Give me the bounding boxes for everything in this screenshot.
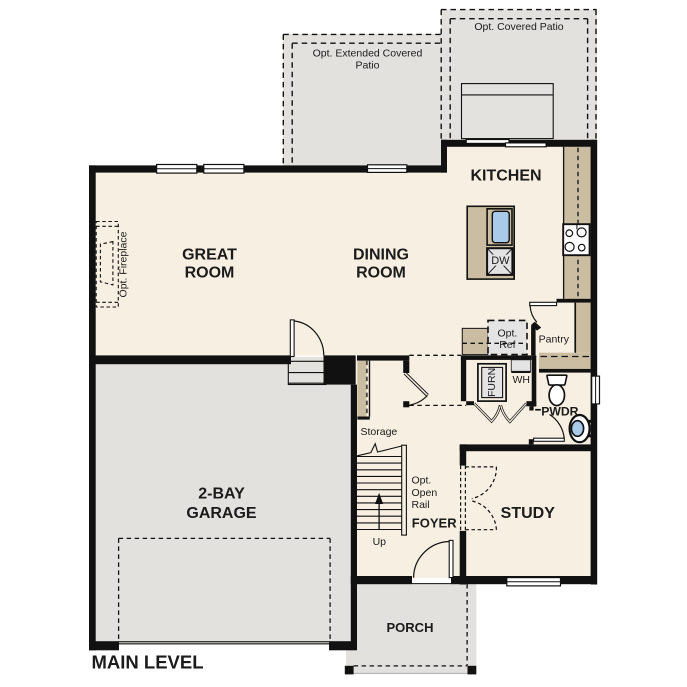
svg-text:Pantry: Pantry [539,334,570,346]
svg-text:Ref: Ref [499,339,515,351]
svg-text:GREAT: GREAT [182,247,237,264]
svg-text:STUDY: STUDY [501,505,556,522]
svg-text:Up: Up [373,536,387,548]
svg-text:ROOM: ROOM [356,265,406,282]
svg-text:GARAGE: GARAGE [186,505,257,522]
svg-text:Opt. Extended Covered: Opt. Extended Covered [313,48,423,60]
svg-text:Patio: Patio [356,60,380,72]
svg-text:Opt.: Opt. [497,328,517,340]
svg-text:Opt. Covered Patio: Opt. Covered Patio [474,21,563,33]
svg-text:FURN: FURN [486,368,498,397]
svg-text:ROOM: ROOM [185,265,235,282]
svg-text:DW: DW [491,255,510,267]
svg-text:FOYER: FOYER [412,515,457,530]
svg-text:PWDR: PWDR [541,404,578,418]
svg-text:PORCH: PORCH [387,620,434,635]
svg-text:Opt. Fireplace: Opt. Fireplace [117,231,129,297]
svg-text:Storage: Storage [361,426,398,438]
svg-text:KITCHEN: KITCHEN [470,168,541,185]
svg-text:Opt.: Opt. [412,474,432,486]
svg-text:WH: WH [512,374,530,386]
svg-text:2-BAY: 2-BAY [198,485,245,502]
svg-text:Rail: Rail [412,499,430,511]
svg-text:DINING: DINING [353,247,409,264]
svg-text:MAIN LEVEL: MAIN LEVEL [92,652,204,673]
svg-text:Open: Open [412,487,438,499]
